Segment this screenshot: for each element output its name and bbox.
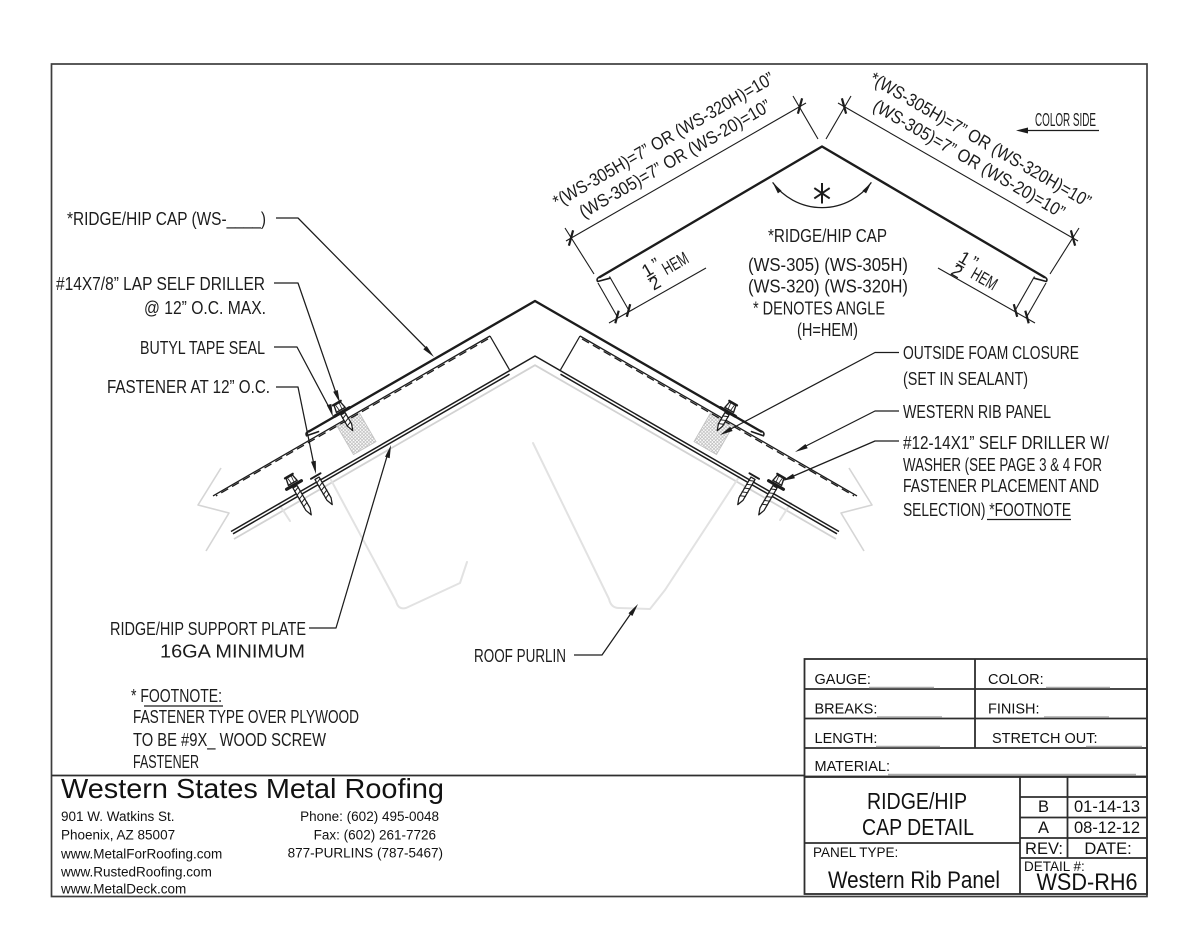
svg-text:Fax: (602) 261-7726: Fax: (602) 261-7726 — [314, 828, 436, 843]
svg-text:(SET IN SEALANT): (SET IN SEALANT) — [903, 369, 1028, 389]
svg-text:ROOF PURLIN: ROOF PURLIN — [474, 646, 566, 666]
svg-text:Phone: (602) 495-0048: Phone: (602) 495-0048 — [300, 809, 439, 824]
svg-text:(WS-320) (WS-320H): (WS-320) (WS-320H) — [748, 277, 908, 297]
svg-text:www.MetalForRoofing.com: www.MetalForRoofing.com — [60, 847, 222, 862]
svg-text:TO BE #9X_ WOOD SCREW: TO BE #9X_ WOOD SCREW — [133, 730, 326, 751]
svg-text:BUTYL TAPE SEAL: BUTYL TAPE SEAL — [140, 338, 265, 358]
svg-text:www.RustedRoofing.com: www.RustedRoofing.com — [60, 865, 212, 880]
svg-text:16GA MINIMUM: 16GA MINIMUM — [160, 642, 305, 662]
svg-text:877-PURLINS (787-5467): 877-PURLINS (787-5467) — [288, 846, 443, 861]
svg-text:Phoenix, AZ 85007: Phoenix, AZ 85007 — [61, 828, 175, 843]
svg-text:CAP DETAIL: CAP DETAIL — [862, 814, 974, 840]
svg-text:STRETCH OUT:: STRETCH OUT: — [992, 731, 1098, 747]
svg-text:PANEL TYPE:: PANEL TYPE: — [813, 845, 898, 860]
svg-text:Western Rib Panel: Western Rib Panel — [828, 867, 1000, 894]
svg-text:RIDGE/HIP: RIDGE/HIP — [867, 788, 967, 814]
svg-text:08-12-12: 08-12-12 — [1074, 819, 1140, 837]
svg-text:#14X7/8” LAP SELF DRILLER: #14X7/8” LAP SELF DRILLER — [56, 274, 265, 294]
svg-text:www.MetalDeck.com: www.MetalDeck.com — [60, 882, 186, 897]
svg-text:FASTENER: FASTENER — [133, 752, 199, 772]
svg-text:GAUGE:: GAUGE: — [815, 672, 871, 688]
svg-text:* DENOTES ANGLE: * DENOTES ANGLE — [753, 299, 885, 319]
svg-text:(WS-305) (WS-305H): (WS-305) (WS-305H) — [748, 255, 908, 275]
svg-text:* FOOTNOTE:: * FOOTNOTE: — [131, 686, 222, 706]
svg-text:COLOR SIDE: COLOR SIDE — [1035, 110, 1096, 130]
svg-text:DATE:: DATE: — [1084, 840, 1131, 858]
svg-text:WSD-RH6: WSD-RH6 — [1037, 869, 1138, 896]
svg-text:WESTERN RIB PANEL: WESTERN RIB PANEL — [903, 402, 1051, 422]
svg-text:FINISH:: FINISH: — [988, 702, 1040, 718]
svg-text:901 W. Watkins St.: 901 W. Watkins St. — [61, 809, 175, 824]
svg-text:REV:: REV: — [1025, 840, 1063, 858]
svg-text:LENGTH:: LENGTH: — [815, 731, 878, 747]
svg-text:01-14-13: 01-14-13 — [1074, 798, 1140, 816]
svg-text:FASTENER PLACEMENT AND: FASTENER PLACEMENT AND — [903, 476, 1099, 496]
svg-text:FASTENER AT 12” O.C.: FASTENER AT 12” O.C. — [107, 377, 270, 397]
svg-text:*RIDGE/HIP CAP: *RIDGE/HIP CAP — [768, 226, 887, 246]
svg-text:COLOR:: COLOR: — [988, 672, 1044, 688]
svg-text:*RIDGE/HIP CAP (WS-____): *RIDGE/HIP CAP (WS-____) — [67, 209, 266, 230]
svg-text:BREAKS:: BREAKS: — [815, 702, 878, 718]
svg-text:SELECTION) *FOOTNOTE: SELECTION) *FOOTNOTE — [903, 500, 1071, 520]
svg-text:A: A — [1038, 819, 1049, 837]
svg-text:OUTSIDE FOAM CLOSURE: OUTSIDE FOAM CLOSURE — [903, 343, 1079, 363]
svg-text:WASHER (SEE PAGE 3 & 4 FOR: WASHER (SEE PAGE 3 & 4 FOR — [903, 455, 1102, 475]
svg-text:FASTENER TYPE OVER PLYWOOD: FASTENER TYPE OVER PLYWOOD — [133, 707, 359, 727]
svg-text:#12-14X1” SELF DRILLER W/: #12-14X1” SELF DRILLER W/ — [903, 433, 1109, 453]
svg-text:B: B — [1038, 798, 1049, 816]
svg-text:RIDGE/HIP SUPPORT PLATE: RIDGE/HIP SUPPORT PLATE — [110, 619, 306, 639]
svg-text:MATERIAL:: MATERIAL: — [815, 759, 890, 775]
svg-text:@ 12” O.C. MAX.: @ 12” O.C. MAX. — [144, 298, 266, 318]
svg-text:(H=HEM): (H=HEM) — [797, 320, 858, 340]
svg-text:Western States Metal Roofing: Western States Metal Roofing — [61, 773, 444, 804]
